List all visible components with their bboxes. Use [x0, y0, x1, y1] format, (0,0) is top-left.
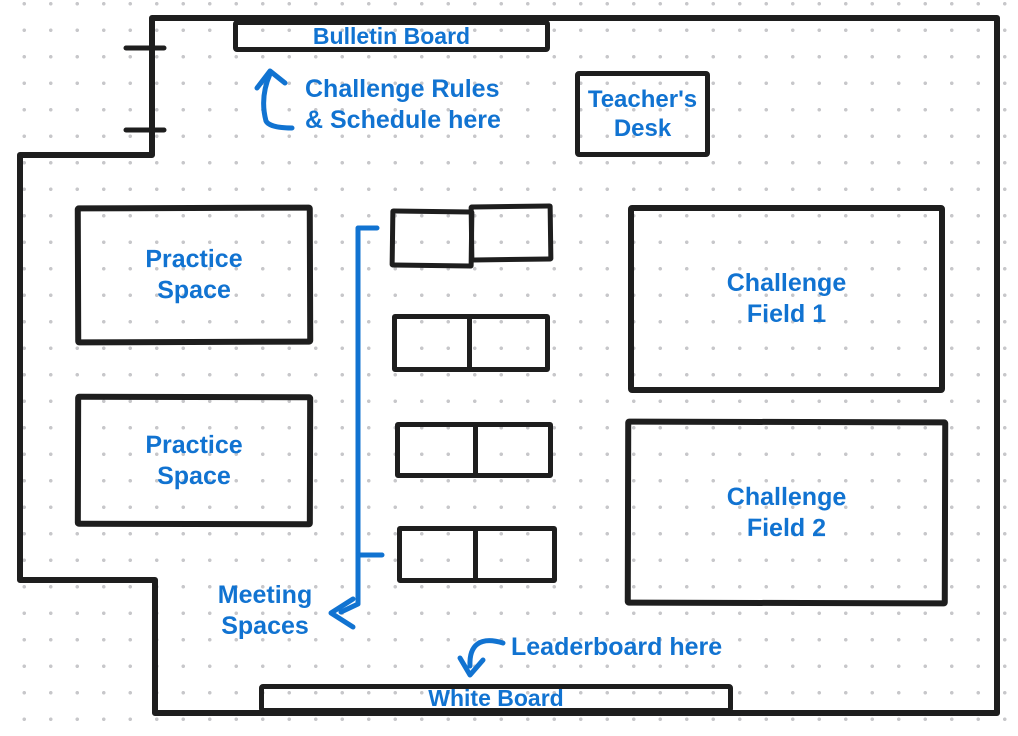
teachers-desk: Teacher's Desk [575, 71, 710, 157]
meeting-table [397, 526, 557, 583]
meeting-spaces-annotation-line2: Spaces [200, 611, 330, 642]
floor-plan: Bulletin Board Teacher's Desk Practice S… [0, 0, 1018, 736]
meeting-spaces-annotation: Meeting Spaces [200, 580, 330, 642]
practice-space-2: Practice Space [75, 394, 313, 528]
meeting-table [395, 422, 553, 478]
challenge-field-2-label-line2: Field 2 [747, 512, 826, 543]
challenge-field-2-label-line1: Challenge [727, 481, 847, 512]
table-divider [467, 319, 472, 367]
rules-annotation-line1: Challenge Rules [305, 74, 501, 105]
meeting-table [390, 208, 475, 268]
meeting-table [392, 314, 550, 372]
practice-space-1-label-line1: Practice [145, 244, 242, 275]
challenge-field-2: Challenge Field 2 [625, 419, 948, 607]
challenge-field-1-label-line1: Challenge [727, 268, 846, 299]
practice-space-2-label-line1: Practice [145, 429, 242, 460]
rules-annotation-line2: & Schedule here [305, 105, 501, 136]
practice-space-2-label-line2: Space [157, 460, 231, 491]
table-divider [473, 531, 478, 578]
table-divider [473, 427, 478, 473]
teachers-desk-label-line2: Desk [614, 114, 671, 143]
white-board-label: White Board [428, 687, 563, 710]
meeting-bracket-arrow-icon [331, 228, 382, 627]
practice-space-1: Practice Space [75, 205, 313, 346]
bulletin-board: Bulletin Board [233, 20, 550, 52]
teachers-desk-label-line1: Teacher's [588, 85, 697, 114]
bulletin-board-label: Bulletin Board [313, 25, 470, 48]
white-board: White Board [259, 684, 733, 713]
leaderboard-annotation: Leaderboard here [511, 632, 722, 663]
practice-space-1-label-line2: Space [157, 275, 231, 306]
meeting-spaces-annotation-line1: Meeting [200, 580, 330, 611]
meeting-table [469, 203, 554, 262]
challenge-field-1: Challenge Field 1 [628, 205, 945, 393]
up-arrow-icon [257, 71, 292, 128]
challenge-field-1-label-line2: Field 1 [747, 299, 826, 330]
rules-annotation: Challenge Rules & Schedule here [305, 74, 501, 136]
down-arrow-icon [460, 641, 503, 675]
